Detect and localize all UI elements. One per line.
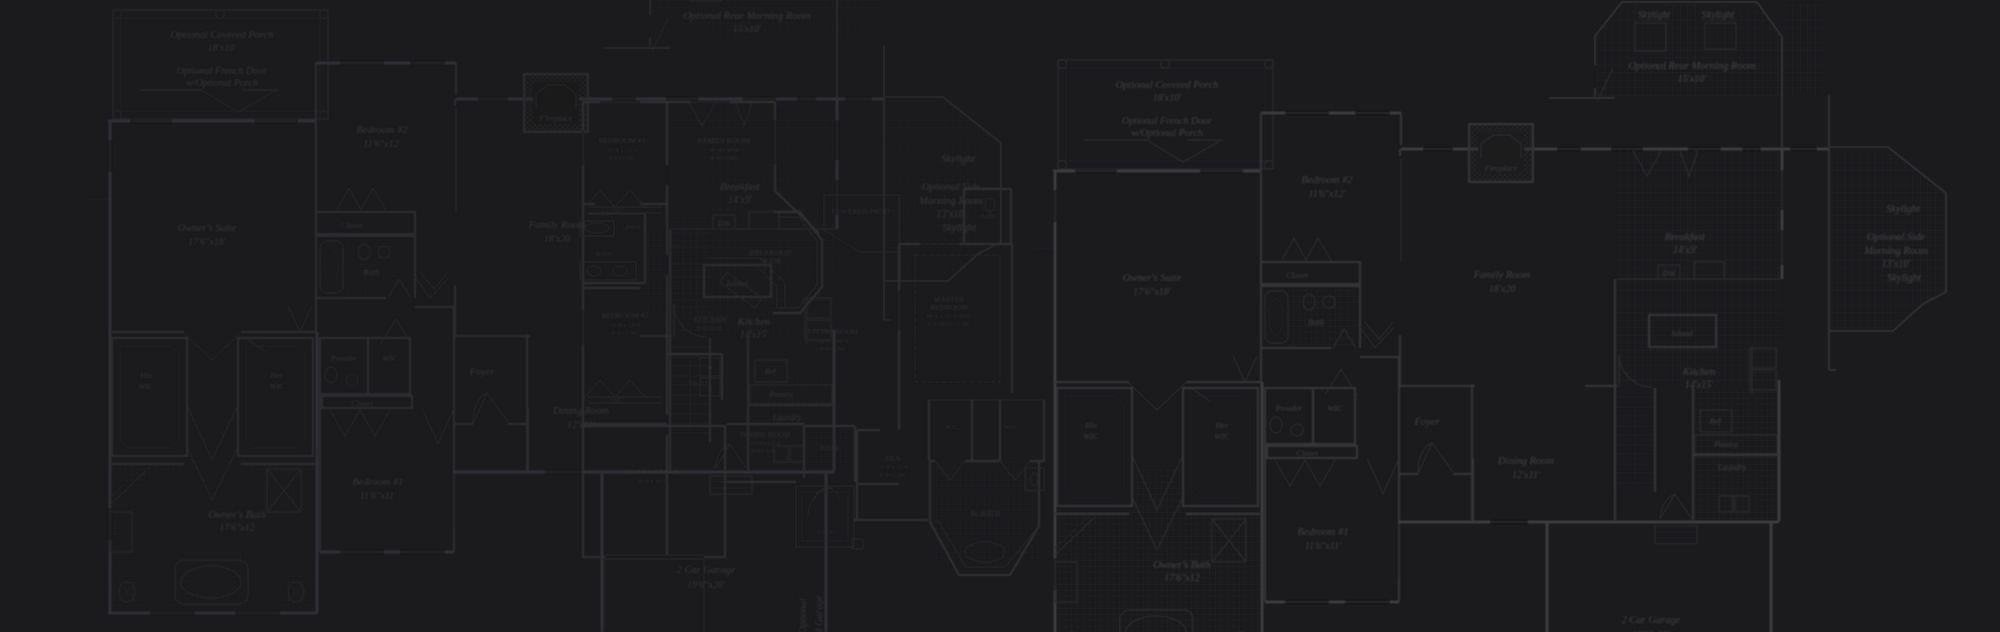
svg-text:17'-4 x 17'-0: 17'-4 x 17'-0 [709, 148, 739, 154]
svg-text:LIVING ROOM: LIVING ROOM [808, 327, 859, 336]
svg-text:9'-0 CLNG: 9'-0 CLNG [820, 347, 848, 353]
svg-text:W: W [707, 366, 713, 372]
svg-text:KITCHEN: KITCHEN [694, 315, 727, 324]
svg-text:CLOSET: CLOSET [602, 398, 625, 404]
svg-text:W.I.C.: W.I.C. [1004, 425, 1020, 431]
svg-text:9'-0 CLNG: 9'-0 CLNG [697, 326, 725, 332]
svg-text:9'-0 TRAY CLNG: 9'-0 TRAY CLNG [927, 322, 972, 328]
svg-text:NOOK: NOOK [760, 256, 782, 265]
svg-text:11'-0 x 13'-0: 11'-0 x 13'-0 [750, 441, 780, 447]
svg-text:CLOSET: CLOSET [602, 208, 625, 214]
svg-text:DINING ROOM: DINING ROOM [739, 430, 790, 439]
svg-text:BEDROOM: BEDROOM [930, 303, 968, 312]
svg-text:FOYER: FOYER [819, 446, 839, 452]
svg-text:9'-0 CLNG: 9'-0 CLNG [752, 449, 780, 455]
svg-text:9'-0 CLNG: 9'-0 CLNG [609, 156, 637, 162]
svg-text:BATH: BATH [596, 252, 612, 258]
svg-text:11'-0 x 12'-0: 11'-0 x 12'-0 [878, 465, 908, 471]
svg-text:ENTRY: ENTRY [817, 530, 837, 536]
svg-text:11'-0 x 13'-0: 11'-0 x 13'-0 [610, 323, 640, 329]
svg-text:16'-0 x 13'-0+BAY: 16'-0 x 13'-0+BAY [926, 314, 972, 320]
svg-text:20'-0 x 20'-0: 20'-0 x 20'-0 [637, 479, 667, 485]
svg-text:DEN: DEN [885, 454, 901, 463]
svg-text:BEDROOM #1: BEDROOM #1 [599, 136, 646, 145]
svg-text:9'-0 CLNG: 9'-0 CLNG [612, 331, 640, 337]
svg-text:16'-0 x 18'-0: 16'-0 x 18'-0 [818, 339, 848, 345]
svg-text:11'-0 x 13'-4: 11'-0 x 13'-4 [607, 148, 637, 154]
svg-text:BATH: BATH [980, 214, 996, 220]
svg-text:2 CAR GARAGE: 2 CAR GARAGE [625, 467, 680, 476]
svg-text:UTILITY: UTILITY [685, 381, 709, 387]
svg-text:FAMILY ROOM: FAMILY ROOM [698, 136, 750, 145]
svg-text:COVERED PATIO: COVERED PATIO [832, 207, 890, 216]
svg-text:M. BATH: M. BATH [970, 509, 1001, 518]
svg-text:W.I.C.: W.I.C. [945, 425, 961, 431]
svg-text:LINEN: LINEN [622, 225, 641, 231]
svg-text:9'-0 CLNG: 9'-0 CLNG [880, 473, 908, 479]
svg-text:9'-0 CLNG: 9'-0 CLNG [711, 156, 739, 162]
